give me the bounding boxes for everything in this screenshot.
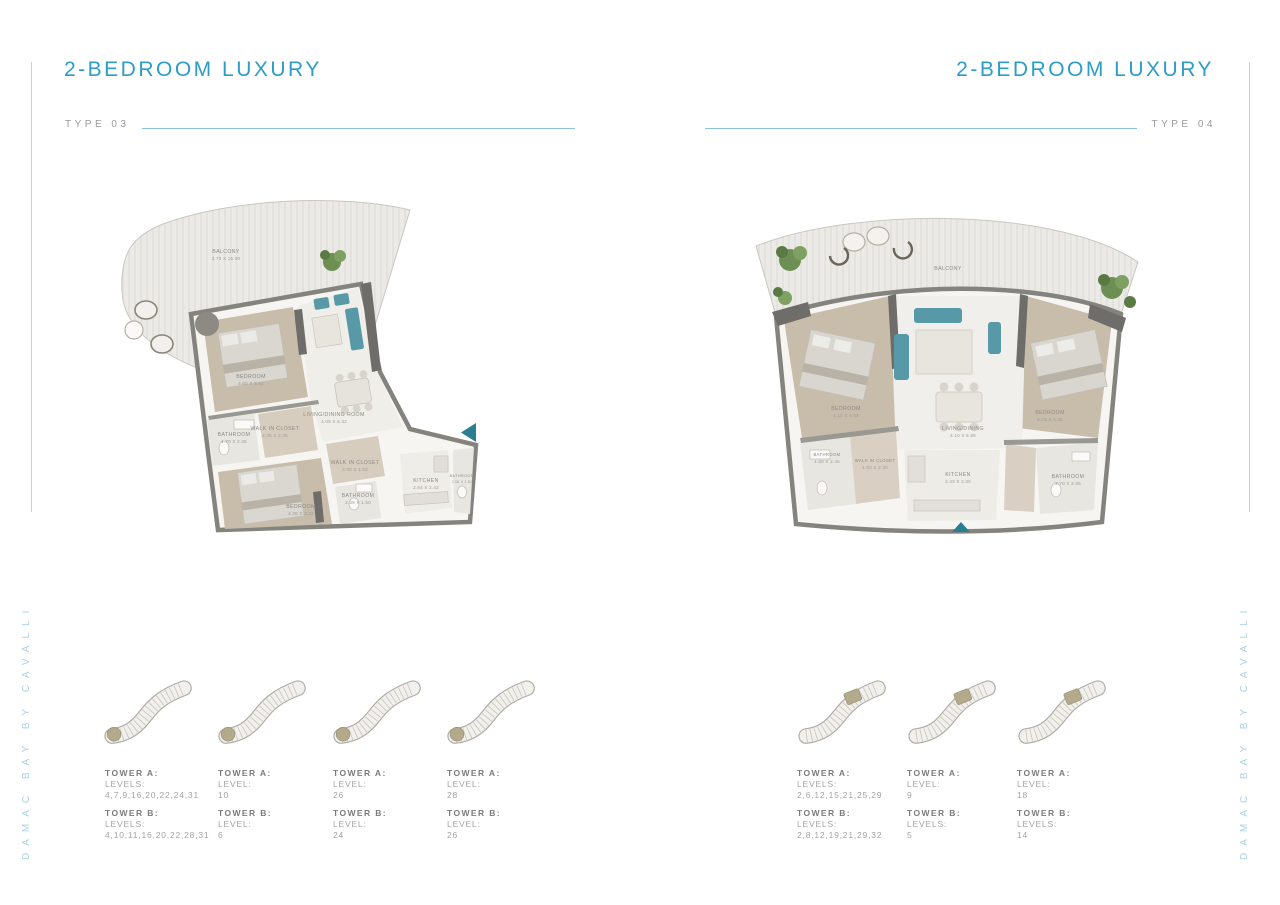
label-balcony: BALCONY [934, 266, 962, 272]
label-bath2: BATHROOM [342, 493, 375, 499]
label-bedroom-right: BEDROOM [1035, 410, 1065, 416]
tower-a-levels-value: 28 [447, 790, 555, 801]
tower-b-title: TOWER B: [447, 808, 555, 819]
tower-a-levels-value: 18 [1017, 790, 1125, 801]
tower-b-levels-value: 26 [447, 830, 555, 841]
label-living-dims: 4.09 X 6.32 [321, 419, 347, 424]
label-bath3-dims: 2.06 X 1.52 [452, 480, 473, 484]
label-wic2: WALK IN CLOSET [331, 460, 380, 466]
tower-b-levels-label: LEVEL: [333, 819, 441, 830]
tower-b-title: TOWER B: [105, 808, 213, 819]
tower-b-title: TOWER B: [333, 808, 441, 819]
type-rule-right [705, 128, 1137, 129]
highlighted-unit [107, 727, 121, 741]
tower-b-levels-label: LEVELS: [1017, 819, 1125, 830]
tower-b-title: TOWER B: [218, 808, 326, 819]
label-bedroom2: BEDROOM [286, 504, 316, 510]
tower-b-title: TOWER B: [907, 808, 1015, 819]
edge-rule-right [1249, 62, 1250, 512]
round-rug [195, 312, 219, 336]
label-bath1-dims: 1.70 X 2.35 [221, 439, 247, 444]
label-bedroom2-dims: 4.36 X 3.32 [288, 511, 314, 516]
tower-a-levels-label: LEVEL: [333, 779, 441, 790]
type-rule-left [142, 128, 575, 129]
label-kitchen: KITCHEN [945, 472, 971, 478]
tower-b-levels-value: 6 [218, 830, 326, 841]
tower-info-col: TOWER A: LEVEL: 18 TOWER B: LEVELS: 14 [1017, 768, 1125, 841]
label-bath-right-dims: 2.70 X 2.35 [1055, 481, 1081, 486]
label-wic1: WALK IN CLOSET [251, 426, 300, 432]
tower-floorplate-thumbnail [1017, 672, 1109, 755]
label-bedroom-left: BEDROOM [831, 406, 861, 412]
label-bedroom1: BEDROOM [236, 374, 266, 380]
tower-a-levels-value: 26 [333, 790, 441, 801]
floorplan-type03: BALCONY 3.70 X 15.00 BEDROOM 4.60 X 3.92… [108, 192, 513, 552]
tower-floorplate-thumbnail [907, 672, 999, 755]
tower-a-levels-label: LEVEL: [907, 779, 1015, 790]
tower-floorplate-thumbnail [446, 672, 538, 755]
label-bath-left-dims: 1.60 X 2.45 [814, 459, 840, 464]
tower-a-levels-value: 4,7,9,16,20,22,24,31 [105, 790, 213, 801]
tower-a-levels-label: LEVEL: [447, 779, 555, 790]
highlighted-unit [221, 727, 235, 741]
brand-side-text-right: DAMAC BAY BY CAVALLI [1239, 515, 1253, 860]
highlighted-unit [450, 727, 464, 741]
tower-b-levels-label: LEVELS: [907, 819, 1015, 830]
tower-floorplate-thumbnail [217, 672, 309, 755]
label-bath1: BATHROOM [218, 432, 251, 438]
label-kitchen: KITCHEN [413, 478, 439, 484]
tower-a-levels-label: LEVELS: [797, 779, 905, 790]
tower-b-levels-value: 14 [1017, 830, 1125, 841]
tower-a-title: TOWER A: [333, 768, 441, 779]
brand-side-text-left: DAMAC BAY BY CAVALLI [21, 515, 35, 860]
tower-b-title: TOWER B: [1017, 808, 1125, 819]
entry-arrow-icon [461, 423, 476, 442]
tower-b-levels-value: 5 [907, 830, 1015, 841]
label-bedroom1-dims: 4.60 X 3.92 [238, 381, 264, 386]
label-bath-left: BATHROOM [813, 452, 840, 457]
label-bedroom-right-dims: 4.75 X 4.45 [1037, 417, 1063, 422]
label-kitchen-dims: 2.43 X 2.30 [945, 479, 971, 484]
tower-info-col: TOWER A: LEVEL: 28 TOWER B: LEVEL: 26 [447, 768, 555, 841]
label-living: LIVING/DINING [942, 426, 984, 432]
label-bath-right: BATHROOM [1052, 474, 1085, 480]
tower-info-col: TOWER A: LEVEL: 26 TOWER B: LEVEL: 24 [333, 768, 441, 841]
tower-a-levels-value: 10 [218, 790, 326, 801]
tower-b-levels-label: LEVELS: [797, 819, 905, 830]
tower-b-title: TOWER B: [797, 808, 905, 819]
tower-b-levels-value: 4,10,11,16,20,22,28,31 [105, 830, 213, 841]
tower-a-levels-label: LEVEL: [218, 779, 326, 790]
floorplan-type04: BALCONY BEDROOM 4.10 X 4.04 LIVING/DININ… [738, 198, 1178, 543]
tower-info-col: TOWER A: LEVELS: 4,7,9,16,20,22,24,31 TO… [105, 768, 213, 841]
label-living: LIVING/DINING ROOM [303, 412, 364, 418]
room-wic-right-floor [1004, 444, 1036, 512]
tower-b-levels-label: LEVELS: [105, 819, 213, 830]
tower-b-levels-label: LEVEL: [447, 819, 555, 830]
label-kitchen-dims: 2.64 X 2.42 [413, 485, 439, 490]
tower-floorplate-thumbnail [103, 672, 195, 755]
tower-a-title: TOWER A: [907, 768, 1015, 779]
tower-a-title: TOWER A: [797, 768, 905, 779]
tower-floorplate-thumbnail [797, 672, 889, 755]
page-title-right: 2-BEDROOM LUXURY [956, 58, 1214, 82]
label-balcony-dims: 3.70 X 15.00 [212, 256, 241, 261]
label-living-dims: 4.10 X 5.85 [950, 433, 976, 438]
tower-info-col: TOWER A: LEVELS: 2,6,12,15,21,25,29 TOWE… [797, 768, 905, 841]
label-bath3: BATHROOM [450, 474, 475, 478]
label-bath2-dims: 2.39 X 1.50 [345, 500, 371, 505]
type-label-left: TYPE 03 [65, 119, 130, 130]
tower-a-levels-label: LEVELS: [105, 779, 213, 790]
tower-a-title: TOWER A: [1017, 768, 1125, 779]
label-wic: WALK IN CLOSET [855, 458, 896, 463]
tower-a-levels-value: 2,6,12,15,21,25,29 [797, 790, 905, 801]
label-wic2-dims: 3.00 X 1.62 [342, 467, 368, 472]
tower-a-levels-value: 9 [907, 790, 1015, 801]
tower-info-col: TOWER A: LEVEL: 10 TOWER B: LEVEL: 6 [218, 768, 326, 841]
edge-rule-left [31, 62, 32, 512]
dining-table [936, 383, 982, 432]
room-bath-left-floor [800, 436, 856, 510]
tower-b-levels-label: LEVEL: [218, 819, 326, 830]
tower-a-title: TOWER A: [447, 768, 555, 779]
highlighted-unit [336, 727, 350, 741]
label-wic1-dims: 2.36 X 2.35 [262, 433, 288, 438]
tower-a-title: TOWER A: [218, 768, 326, 779]
tower-floorplate-thumbnail [332, 672, 424, 755]
tower-b-levels-value: 2,8,12,19,21,29,32 [797, 830, 905, 841]
label-balcony: BALCONY [212, 249, 240, 255]
type-label-right: TYPE 04 [1151, 119, 1216, 130]
label-bedroom-left-dims: 4.10 X 4.04 [833, 413, 859, 418]
page-title-left: 2-BEDROOM LUXURY [64, 58, 322, 82]
tower-info-col: TOWER A: LEVEL: 9 TOWER B: LEVELS: 5 [907, 768, 1015, 841]
label-wic-dims: 1.93 X 2.30 [862, 465, 888, 470]
tower-b-levels-value: 24 [333, 830, 441, 841]
tower-a-title: TOWER A: [105, 768, 213, 779]
tower-a-levels-label: LEVEL: [1017, 779, 1125, 790]
